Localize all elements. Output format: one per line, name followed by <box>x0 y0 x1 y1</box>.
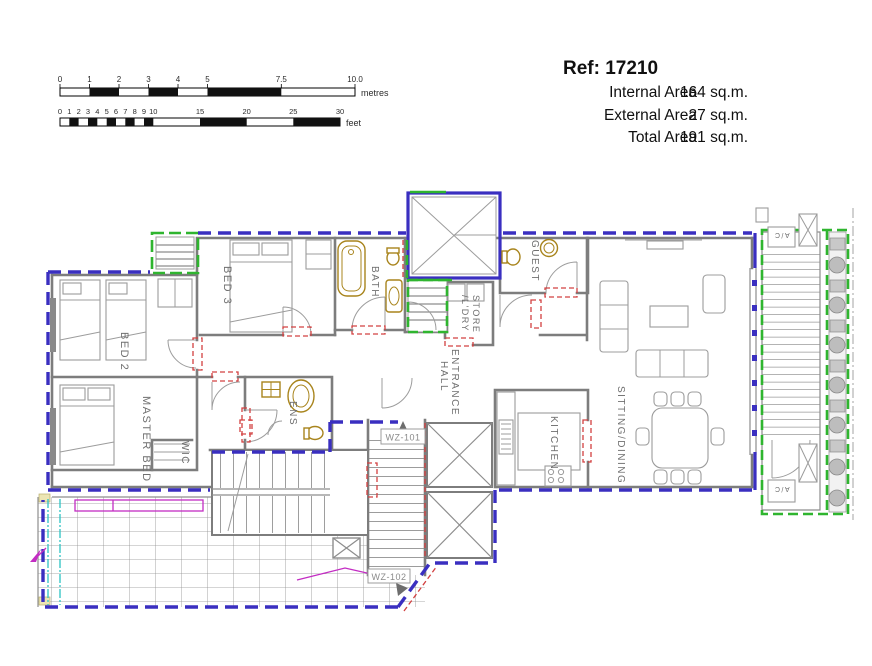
small-balcony <box>152 233 198 273</box>
feet-tick: 7 <box>123 107 127 116</box>
metre-tick: 5 <box>205 75 210 84</box>
door-arc <box>212 382 240 410</box>
room-label-bed2: BED 2 <box>118 332 130 371</box>
title-block: Ref: 17210 Internal Area 164 sq.m. Exter… <box>563 58 748 146</box>
scale-bar-feet: 0 1 2 3 4 5 6 7 8 9 10 15 20 25 30 feet <box>58 107 362 128</box>
plant-icon <box>829 377 845 393</box>
external-area-value: 27 sq.m. <box>689 107 748 124</box>
shrub-icon <box>830 280 845 292</box>
room-label-master-bed: MASTER BED <box>140 396 152 483</box>
feet-tick: 20 <box>243 107 251 116</box>
plant-icon <box>829 297 845 313</box>
door-arc <box>382 378 412 408</box>
toilet-icon <box>506 249 520 265</box>
feet-tick: 6 <box>114 107 118 116</box>
metre-tick: 7.5 <box>276 75 288 84</box>
ac-label: A/C <box>773 231 789 238</box>
sink-icon <box>386 280 402 312</box>
elevator-shaft <box>408 193 500 278</box>
internal-area-value: 164 sq.m. <box>680 84 748 101</box>
armchair <box>703 275 725 313</box>
shrub-icon <box>830 238 845 250</box>
feet-tick: 15 <box>196 107 204 116</box>
room-label-entrance: ENTRANCE <box>449 349 460 416</box>
door-arc <box>168 340 196 368</box>
planter-strip <box>829 208 853 520</box>
metre-tick: 2 <box>117 75 122 84</box>
ac-label: A/C <box>773 485 789 492</box>
feet-tick: 5 <box>105 107 109 116</box>
coffee-table <box>650 306 688 327</box>
feet-tick: 9 <box>142 107 146 116</box>
terrace-skylight <box>333 538 360 558</box>
tv-console <box>647 241 683 249</box>
dining-table <box>652 408 708 468</box>
metre-tick: 10.0 <box>347 75 363 84</box>
plant-icon <box>829 417 845 433</box>
total-area-value: 191 sq.m. <box>680 129 748 146</box>
room-label-bath: BATH <box>369 266 380 298</box>
dining-chair <box>654 392 667 406</box>
window <box>50 408 56 465</box>
wz102-label: WZ-102 <box>371 572 406 582</box>
metre-tick: 0 <box>58 75 63 84</box>
feet-tick: 2 <box>77 107 81 116</box>
floorplan-page: Ref: 17210 Internal Area 164 sq.m. Exter… <box>0 0 872 666</box>
room-label-sitting-dining: SITTING/DINING <box>615 386 626 484</box>
floorplan-drawing: Ref: 17210 Internal Area 164 sq.m. Exter… <box>0 0 872 666</box>
plant-icon <box>829 490 845 506</box>
feet-tick: 10 <box>149 107 157 116</box>
plant-icon <box>829 257 845 273</box>
plant-icon <box>829 459 845 475</box>
plant-icon <box>829 337 845 353</box>
feet-tick: 0 <box>58 107 62 116</box>
metre-tick: 3 <box>146 75 151 84</box>
scale-bar-metres: 0 1 2 3 4 5 7.5 10.0 metres <box>58 75 389 98</box>
room-label-hall: HALL <box>438 361 449 392</box>
internal-stairs <box>408 280 447 332</box>
feet-tick: 3 <box>86 107 90 116</box>
door-arc <box>352 297 385 330</box>
shrub-icon <box>830 320 845 332</box>
metre-tick: 4 <box>176 75 181 84</box>
shrub-icon <box>830 360 845 372</box>
metres-unit-label: metres <box>361 88 389 98</box>
dining-chair <box>688 392 701 406</box>
feet-tick: 30 <box>336 107 344 116</box>
kitchen-furniture <box>497 392 580 486</box>
feet-tick: 4 <box>95 107 99 116</box>
room-label-ens: ENS <box>287 401 298 426</box>
sofa <box>600 281 628 352</box>
room-label-guest: GUEST <box>529 240 540 282</box>
feet-tick: 1 <box>67 107 71 116</box>
sink-icon <box>541 240 558 257</box>
sofa <box>636 350 708 377</box>
feet-tick: 8 <box>133 107 137 116</box>
door-arc <box>268 421 282 435</box>
dining-chair <box>671 392 684 406</box>
dining-chair <box>711 428 724 445</box>
room-label-wic: WIC <box>179 441 190 465</box>
room-label-bed3: BED 3 <box>221 266 233 305</box>
dining-chair <box>636 428 649 445</box>
room-label-ldry: /L'DRY <box>460 295 470 332</box>
wz101-label: WZ-101 <box>385 433 420 443</box>
shrub-icon <box>830 400 845 412</box>
dining-chair <box>654 470 667 484</box>
bed3-furniture <box>230 240 331 332</box>
reference-number: Ref: 17210 <box>563 58 658 79</box>
door-arc <box>500 295 532 327</box>
room-label-store: STORE <box>471 295 481 333</box>
communal-stairs <box>212 450 368 535</box>
shrub-icon <box>830 440 845 452</box>
room-label-kitchen: KITCHEN <box>548 416 559 470</box>
metre-tick: 1 <box>87 75 92 84</box>
window <box>50 298 56 352</box>
dining-chair <box>671 470 684 484</box>
feet-tick: 25 <box>289 107 297 116</box>
master-bed-furniture <box>60 385 190 465</box>
feet-unit-label: feet <box>346 118 362 128</box>
dining-chair <box>688 470 701 484</box>
external-area-label: External Area <box>604 107 697 124</box>
